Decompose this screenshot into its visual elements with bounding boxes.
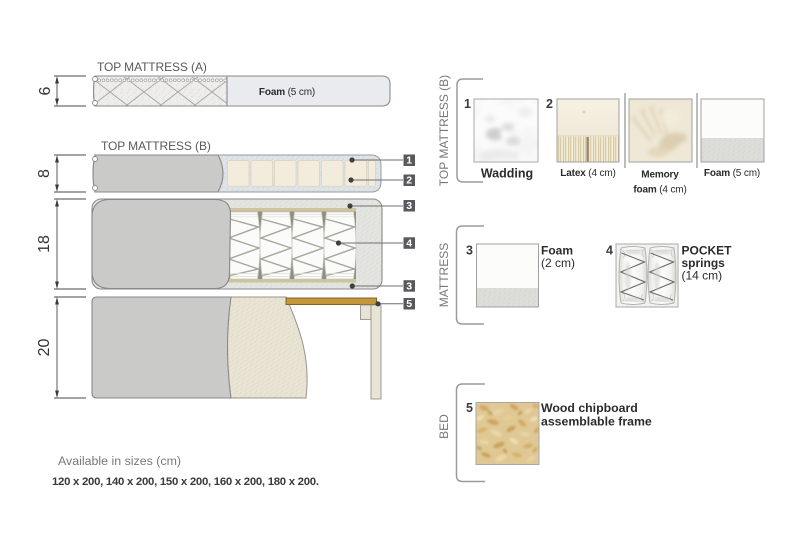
svg-text:foam (4 cm): foam (4 cm) (633, 185, 686, 196)
svg-text:MATTRESS: MATTRESS (437, 243, 451, 307)
svg-text:Wadding: Wadding (481, 167, 533, 181)
svg-text:assemblable frame: assemblable frame (541, 415, 652, 429)
svg-text:Memory: Memory (641, 170, 679, 181)
svg-text:4: 4 (606, 244, 613, 258)
svg-text:TOP MATTRESS (B): TOP MATTRESS (B) (101, 139, 211, 153)
svg-text:3: 3 (466, 244, 473, 258)
svg-text:5: 5 (406, 298, 412, 310)
svg-text:BED: BED (437, 414, 451, 439)
svg-text:TOP MATTRESS (B): TOP MATTRESS (B) (437, 75, 451, 186)
svg-text:3: 3 (406, 200, 412, 212)
svg-text:Foam (5 cm): Foam (5 cm) (259, 87, 315, 98)
svg-text:1: 1 (464, 97, 471, 111)
svg-text:Latex (4 cm): Latex (4 cm) (560, 168, 615, 179)
svg-text:5: 5 (466, 401, 473, 415)
svg-text:(14 cm): (14 cm) (682, 269, 723, 283)
svg-text:8: 8 (36, 169, 53, 178)
svg-text:Foam (5 cm): Foam (5 cm) (704, 168, 760, 179)
svg-text:2: 2 (546, 97, 553, 111)
svg-text:Available in sizes (cm): Available in sizes (cm) (58, 454, 181, 468)
svg-text:20: 20 (36, 339, 53, 357)
svg-text:18: 18 (36, 235, 53, 253)
svg-text:TOP MATTRESS (A): TOP MATTRESS (A) (97, 60, 207, 74)
svg-text:2: 2 (406, 175, 412, 187)
svg-text:6: 6 (37, 86, 54, 95)
svg-text:120 x 200, 140 x 200, 150 x 20: 120 x 200, 140 x 200, 150 x 200, 160 x 2… (52, 476, 319, 488)
svg-text:3: 3 (406, 280, 412, 292)
svg-text:4: 4 (406, 238, 412, 250)
svg-text:(2 cm): (2 cm) (541, 256, 575, 270)
svg-text:Wood chipboard: Wood chipboard (541, 401, 638, 415)
svg-text:1: 1 (406, 155, 412, 167)
